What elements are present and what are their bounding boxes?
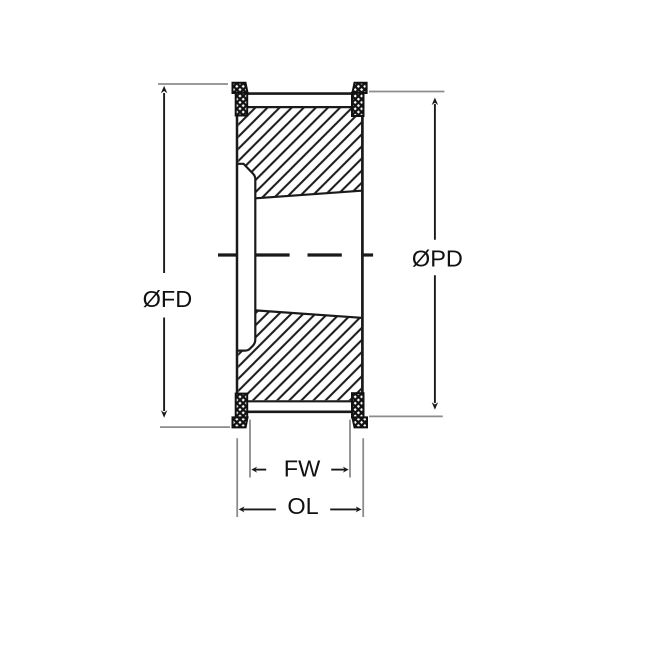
svg-text:ØFD: ØFD bbox=[143, 286, 193, 312]
svg-text:OL: OL bbox=[287, 493, 318, 519]
svg-text:FW: FW bbox=[284, 455, 321, 481]
svg-text:ØPD: ØPD bbox=[412, 246, 463, 272]
